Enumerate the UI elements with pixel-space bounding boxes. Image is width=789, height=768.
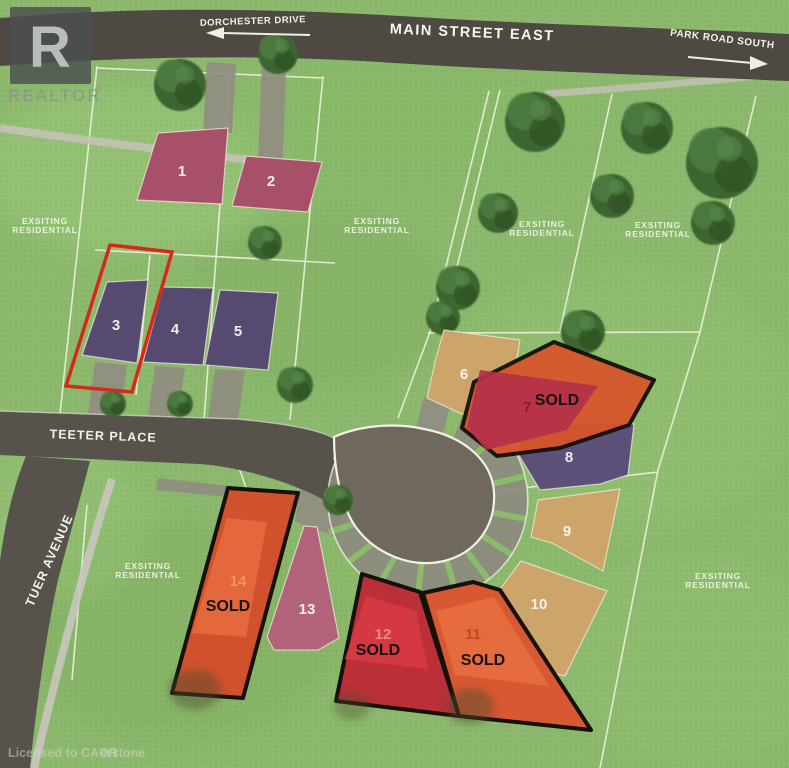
- photo-grain-overlay: [0, 0, 789, 768]
- site-plan-map: 1 2 3 4 5 6 7 8 9 10 11 12 13 14 SOLD SO…: [0, 0, 789, 768]
- site-plan-svg: 1 2 3 4 5 6 7 8 9 10 11 12 13 14 SOLD SO…: [0, 0, 789, 768]
